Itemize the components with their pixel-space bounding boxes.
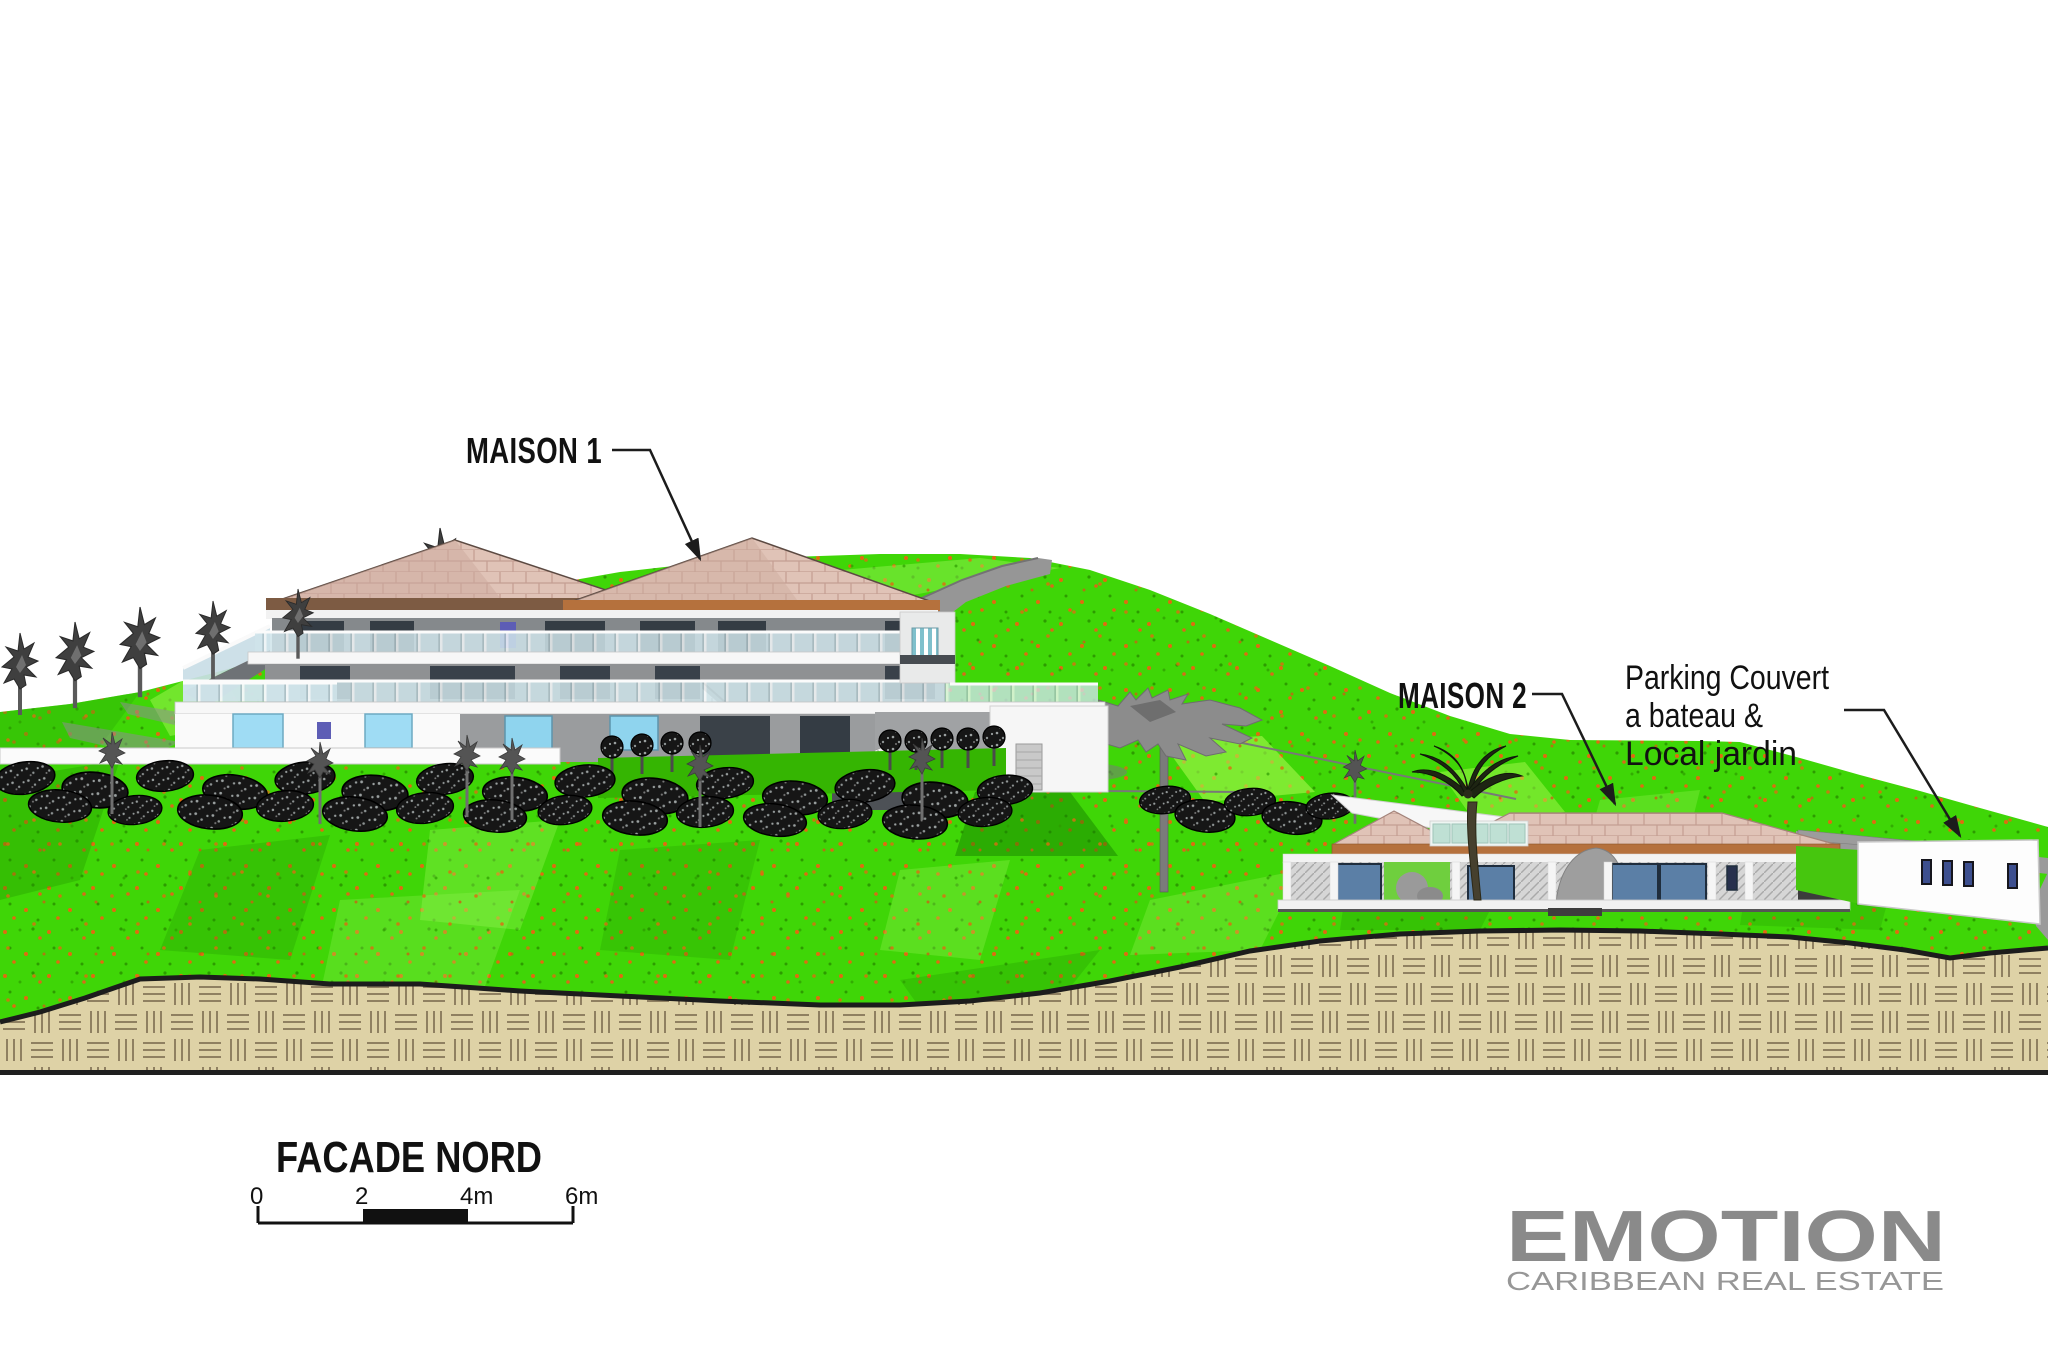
section-base-line xyxy=(0,1070,2048,1075)
maison2-roof-glass-railing xyxy=(1430,821,1528,846)
scale-tick-4m: 4m xyxy=(460,1183,493,1210)
parking-label-line3: Local jardin xyxy=(1625,735,1797,773)
maison-2-label: MAISON 2 xyxy=(1398,675,1527,716)
maison1-balcony-upper-railing xyxy=(255,632,940,653)
maison1-fascia-right xyxy=(563,600,940,611)
maison-1-label: MAISON 1 xyxy=(466,430,602,471)
logo-wordmark: EMOTION xyxy=(1506,1197,1946,1277)
logo-tagline: CARIBBEAN REAL ESTATE xyxy=(1506,1266,1944,1296)
elevation-drawing-canvas: MAISON 1 MAISON 2 Parking Couvert a bate… xyxy=(0,0,2048,1365)
scale-tick-6m: 6m xyxy=(565,1183,598,1210)
facade-nord-elevation: MAISON 1 MAISON 2 Parking Couvert a bate… xyxy=(0,0,2048,1365)
drawing-title: FACADE NORD xyxy=(276,1133,542,1182)
parking-label-line1: Parking Couvert xyxy=(1625,659,1829,697)
scale-tick-2: 2 xyxy=(355,1183,368,1210)
scale-tick-0: 0 xyxy=(250,1183,263,1210)
parking-label-line2: a bateau & xyxy=(1625,697,1763,735)
maison1-right-terrace-railing xyxy=(950,684,1098,704)
emotion-logo: EMOTION CARIBBEAN REAL ESTATE xyxy=(1506,1197,1946,1296)
maison1-left-terrace-railing xyxy=(183,683,337,701)
scale-bar-filled-segment xyxy=(363,1209,468,1223)
maison1-louver-shutter xyxy=(912,628,938,658)
